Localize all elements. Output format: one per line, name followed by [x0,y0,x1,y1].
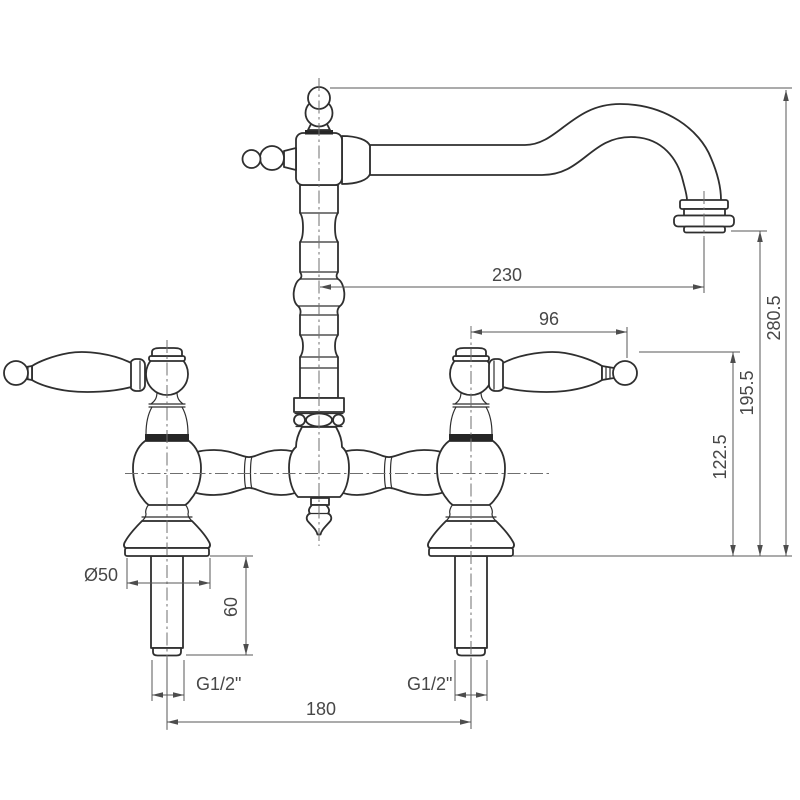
right-handle [489,352,637,392]
dim-overall-height-label: 280.5 [764,295,784,340]
dim-handle-height: 122.5 [710,352,736,556]
dim-overall-height: 280.5 [764,90,789,556]
dim-handle-length: 96 [471,309,627,335]
dim-thread-left: G1/2" [152,674,241,698]
dim-handle-height-label: 122.5 [710,434,730,479]
dim-outlet-height: 195.5 [737,231,763,556]
dim-hole-spacing: 180 [167,699,471,725]
dim-base-diameter-label: Ø50 [84,565,118,585]
technical-drawing-canvas: 230 280.5 195.5 122.5 96 [0,0,800,800]
left-handle [4,352,145,392]
dim-spout-reach: 230 [320,265,704,290]
dim-spout-reach-label: 230 [492,265,522,285]
dim-handle-length-label: 96 [539,309,559,329]
faucet-drawing: 230 280.5 195.5 122.5 96 [0,0,800,800]
dim-outlet-height-label: 195.5 [737,370,757,415]
dim-thread-left-label: G1/2" [196,674,241,694]
dim-shank-length-label: 60 [221,597,241,617]
dim-thread-right: G1/2" [407,674,487,698]
dim-shank-length: 60 [221,557,249,655]
dim-hole-spacing-label: 180 [306,699,336,719]
dim-thread-right-label: G1/2" [407,674,452,694]
dimension-lines: 230 280.5 195.5 122.5 96 [84,88,792,729]
dim-base-diameter: Ø50 [84,565,210,586]
